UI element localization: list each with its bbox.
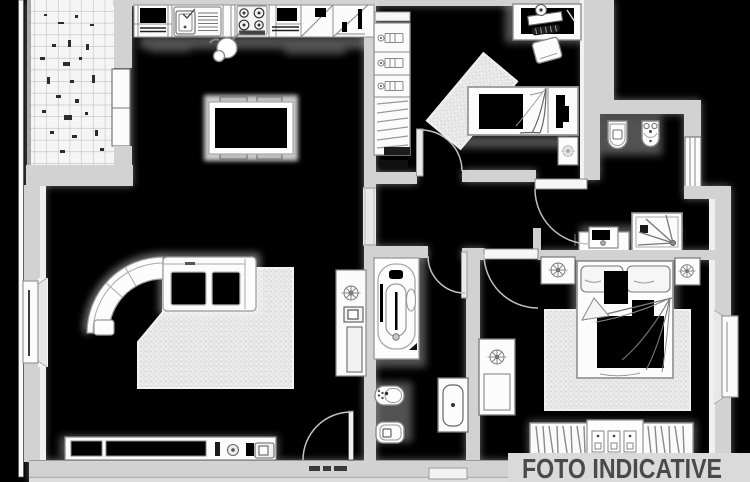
svg-text:FOTO INDICATIVE: FOTO INDICATIVE (522, 453, 722, 482)
